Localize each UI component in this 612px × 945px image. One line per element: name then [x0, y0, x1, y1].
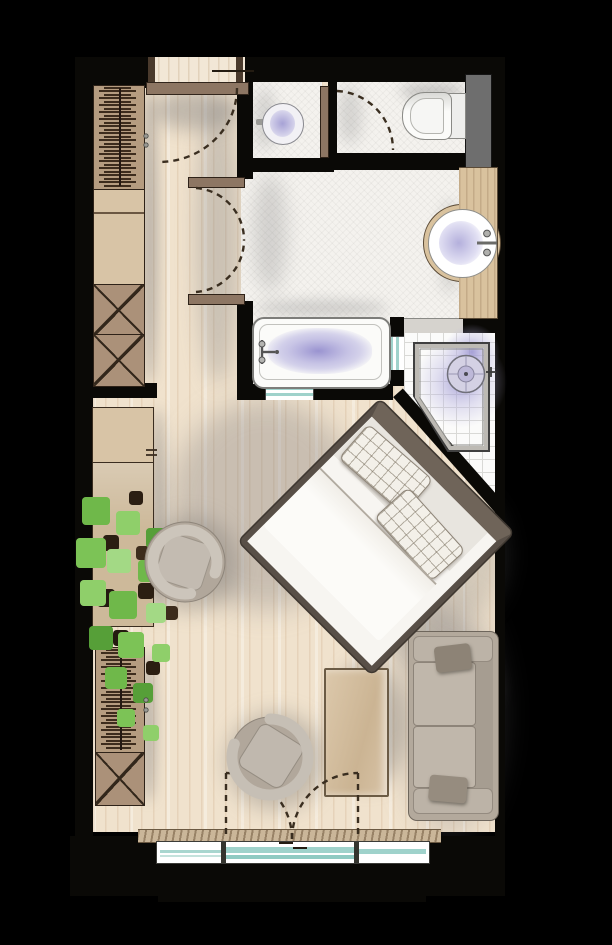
bath-door-leaf-bottom: [188, 294, 245, 305]
wall-stub-tub-bottom: [390, 370, 404, 386]
bath-door-leaf-top: [188, 177, 245, 188]
sofa-pillow: [428, 774, 468, 803]
wc-door-leaf: [320, 86, 329, 158]
wall-below-window: [158, 862, 426, 902]
toilet-seat: [410, 98, 444, 134]
wall-right-wc: [490, 74, 505, 170]
floor-plan: [0, 0, 612, 945]
wardrobe-hangers-bottom: [95, 647, 145, 755]
wardrobe-rod: [120, 650, 122, 750]
shower-ledge: [404, 318, 463, 333]
wall-left: [75, 85, 93, 838]
hanger-rail: [104, 87, 131, 187]
potted-plant: [132, 585, 134, 587]
bathtub-water: [268, 328, 372, 374]
bathtub: [252, 317, 391, 389]
wall-bottom-right: [426, 836, 505, 896]
shelf-box-1: [93, 284, 145, 337]
sideboard-lower: [92, 462, 154, 627]
window-glass-right: [359, 845, 426, 858]
entry-alcove-floor: [148, 57, 245, 84]
wall-top-left: [75, 57, 153, 88]
wardrobe-hangers-top: [93, 85, 145, 191]
desk-table: [324, 668, 389, 797]
sofa-pillow: [434, 643, 473, 673]
wardrobe-rod: [119, 88, 121, 186]
window-band: [156, 841, 430, 864]
window-glass-left: [160, 846, 221, 859]
wall-bidet-bottom: [237, 158, 334, 172]
wall-gray-block: [465, 74, 492, 170]
entry-door-leaf: [146, 82, 249, 95]
wall-wc-bottom: [334, 153, 465, 170]
sideboard-upper: [92, 407, 154, 464]
wall-stub-tub-top: [390, 317, 404, 338]
window-glass-middle: [226, 844, 354, 861]
dresser-seam: [94, 212, 144, 214]
sofa: [408, 631, 499, 821]
wall-bottom-left: [70, 836, 158, 896]
shelf-box-2: [93, 334, 145, 387]
bidet-water: [270, 110, 295, 137]
dresser: [93, 189, 145, 286]
basin-water: [439, 221, 483, 265]
hanger-rail: [106, 649, 131, 751]
wall-partition-wc: [328, 80, 337, 158]
shelf-box-3: [95, 752, 145, 806]
